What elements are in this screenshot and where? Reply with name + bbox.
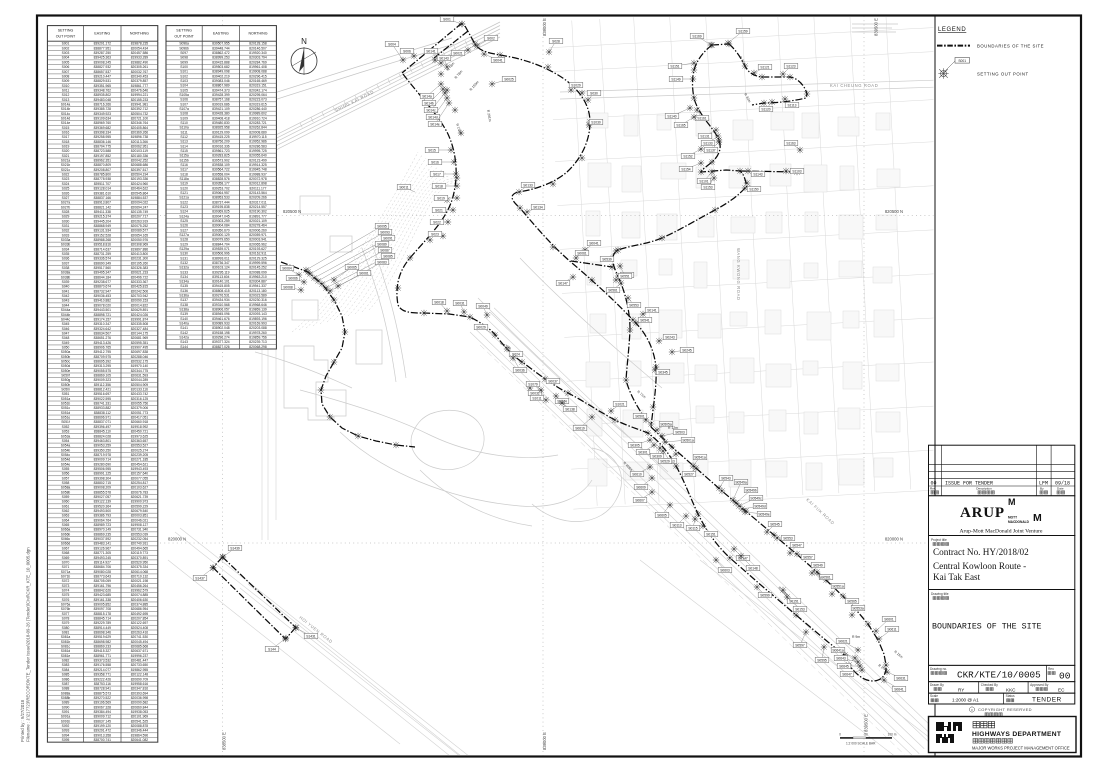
svg-text:839000 E: 839000 E [542,18,547,36]
svg-text:S0503: S0503 [675,430,685,434]
svg-text:Printed by : 9/27/2018: Printed by : 9/27/2018 [20,699,25,742]
svg-text:S0087: S0087 [380,248,390,252]
svg-text:S0065: S0065 [347,265,357,269]
svg-text:S014a: S014a [422,94,432,98]
svg-text:S1137: S1137 [706,148,715,152]
svg-text:S1011: S1011 [532,396,541,400]
svg-text:Contract No. HY/2018/02: Contract No. HY/2018/02 [933,547,1029,557]
svg-text:S0565: S0565 [847,599,857,603]
svg-text:S024: S024 [512,352,520,356]
svg-text:S0309: S0309 [652,454,662,458]
svg-text:S1123: S1123 [786,64,795,68]
svg-text:S0093: S0093 [380,230,390,234]
svg-text:820000 N: 820000 N [885,537,903,542]
svg-text:S0641: S0641 [894,687,904,691]
svg-text:S0153: S0153 [795,607,805,611]
svg-text:S0141: S0141 [647,308,657,312]
svg-text:S0547: S0547 [792,543,802,547]
svg-text:S1437: S1437 [195,576,205,580]
svg-text:S0601: S0601 [884,617,894,621]
svg-text:Rev.: Rev. [930,487,936,491]
svg-text:S0148: S0148 [748,566,758,570]
svg-text:S1431: S1431 [306,634,316,638]
svg-text:S0621: S0621 [838,639,848,643]
svg-text:EC: EC [1058,688,1065,693]
svg-text:S0619: S0619 [575,426,585,430]
svg-text:S019: S019 [437,196,445,200]
svg-text:S0083: S0083 [377,260,387,264]
svg-text:Drawn By: Drawn By [930,683,944,687]
svg-text:EASTING: EASTING [94,32,110,36]
svg-text:S0018: S0018 [434,300,444,304]
svg-text:09/18: 09/18 [1055,480,1070,486]
svg-text:S0609: S0609 [636,485,646,489]
svg-text:KAI CHEUNG ROAD: KAI CHEUNG ROAD [830,83,878,88]
svg-text:BOUNDARIES OF THE SITE: BOUNDARIES OF THE SITE [932,623,1042,632]
svg-text:S014e: S014e [430,122,440,126]
svg-text:S0551: S0551 [620,274,630,278]
svg-text:S1030: S1030 [591,120,601,124]
svg-text:N: N [301,37,307,46]
svg-text:WANG KWONG ROAD: WANG KWONG ROAD [736,248,741,301]
svg-text:839000 E: 839000 E [542,732,547,750]
svg-text:S0133: S0133 [523,183,533,187]
svg-text:S0345: S0345 [658,370,668,374]
svg-text:S0645: S0645 [839,664,849,668]
svg-text:S0643: S0643 [836,656,846,660]
svg-text:S0611: S0611 [887,627,896,631]
svg-text:50: 50 [864,733,868,737]
svg-text:S1131: S1131 [700,134,709,138]
svg-text:820000 N: 820000 N [168,537,186,542]
svg-text:S030: S030 [590,91,598,95]
svg-text:S1165: S1165 [676,123,685,127]
svg-text:Drawing title: Drawing title [931,592,949,596]
svg-text:RY: RY [958,688,964,693]
svg-text:R 9m: R 9m [852,635,860,639]
svg-text:S1161: S1161 [697,116,706,120]
svg-text:S0641a: S0641a [832,648,844,652]
svg-text:S0061: S0061 [577,251,587,255]
svg-text:S028: S028 [552,39,560,43]
svg-text:S0501: S0501 [635,414,645,418]
svg-text:S0561: S0561 [608,288,618,292]
svg-text:S1149: S1149 [671,77,680,81]
svg-text:S0134: S0134 [533,205,543,209]
svg-text:S017: S017 [433,172,441,176]
svg-text:S0543: S0543 [721,476,731,480]
svg-text:S0036: S0036 [515,368,525,372]
svg-text:S1140: S1140 [667,114,676,118]
svg-text:00: 00 [931,480,937,486]
svg-text:S014b: S014b [424,101,434,105]
svg-text:S021: S021 [435,208,443,212]
svg-text:MAJOR WORKS PROJECT MANAGEMENT: MAJOR WORKS PROJECT MANAGEMENT OFFICE [972,746,1070,751]
svg-text:S0301: S0301 [638,450,648,454]
svg-text:1:2000 @ A1: 1:2000 @ A1 [952,698,979,703]
svg-text:S1079: S1079 [528,382,538,386]
svg-text:S0529: S0529 [660,459,670,463]
svg-text:S0091: S0091 [383,236,393,240]
svg-text:1:2 000 SCALE BAR: 1:2 000 SCALE BAR [846,742,876,746]
svg-text:S016: S016 [431,160,439,164]
svg-text:S0031: S0031 [455,301,465,305]
svg-text:TENDER: TENDER [1032,697,1062,704]
svg-text:SETTING: SETTING [176,29,192,33]
svg-text:S1151: S1151 [670,64,679,68]
svg-text:S0545: S0545 [770,522,780,526]
svg-text:S0501a: S0501a [682,438,694,442]
svg-text:S1029: S1029 [571,83,581,87]
svg-text:S0549c: S0549c [750,496,762,500]
svg-text:S1021: S1021 [615,402,625,406]
svg-text:CKR/KTE/10/0005: CKR/KTE/10/0005 [957,670,1041,681]
svg-text:S1113: S1113 [787,103,796,107]
svg-text:S0541a: S0541a [694,455,706,459]
svg-text:0: 0 [839,733,841,737]
svg-text:S0243: S0243 [665,335,675,339]
svg-text:S1133: S1133 [703,141,712,145]
svg-text:BOUNDARIES OF THE SITE: BOUNDARIES OF THE SITE [977,44,1044,49]
svg-text:Arup-Mott MacDonald Joint Vent: Arup-Mott MacDonald Joint Venture [959,529,1043,535]
svg-text:S1163: S1163 [786,141,795,145]
svg-text:S0011: S0011 [399,185,408,189]
svg-text:Project title: Project title [931,538,947,542]
svg-text:839500 E: 839500 E [864,714,869,732]
svg-text:LEGEND: LEGEND [938,27,966,33]
svg-text:Central Kowloon Route -: Central Kowloon Route - [933,561,1026,571]
svg-text:Description: Description [976,487,992,491]
svg-text:S0032: S0032 [530,391,540,395]
svg-text:S1152: S1152 [683,154,692,158]
svg-text:S0245: S0245 [682,348,692,352]
svg-text:S0305: S0305 [630,443,640,447]
svg-text:S0061: S0061 [359,271,369,275]
svg-text:S0549b: S0549b [745,488,757,492]
svg-text:S0029: S0029 [476,325,486,329]
svg-text:OUT POINT: OUT POINT [56,35,76,39]
svg-text:838500 E: 838500 E [222,732,227,750]
svg-text:OUT POINT: OUT POINT [174,35,194,39]
svg-text:S001: S001 [958,59,966,63]
svg-text:S0603: S0603 [720,568,730,572]
svg-text:S1103: S1103 [792,169,801,173]
svg-text:S0041: S0041 [589,241,599,245]
svg-text:S0557: S0557 [803,555,813,559]
svg-text:S0037: S0037 [548,379,558,383]
svg-text:00: 00 [1059,671,1071,682]
svg-text:S0068: S0068 [283,285,293,289]
svg-text:S0549d: S0549d [754,504,766,508]
svg-text:HIGHWAYS DEPARTMENT: HIGHWAYS DEPARTMENT [972,731,1062,738]
svg-text:Checked By: Checked By [981,683,999,687]
svg-text:S0115: S0115 [688,526,697,530]
svg-text:S0527: S0527 [684,472,694,476]
svg-text:S0138: S0138 [565,407,575,411]
svg-text:S1159: S1159 [738,29,747,33]
svg-text:S0141: S0141 [426,49,436,53]
svg-text:M: M [1033,512,1042,524]
svg-text:100 m: 100 m [888,733,897,737]
svg-text:c: c [971,708,973,712]
svg-text:NORTHING: NORTHING [130,32,149,36]
svg-text:S0147: S0147 [558,281,568,285]
svg-text:S0064: S0064 [282,266,292,270]
svg-text:S0025: S0025 [504,77,514,81]
svg-text:S0595: S0595 [817,658,827,662]
svg-text:820500 N: 820500 N [283,209,301,214]
svg-text:S0597: S0597 [795,643,805,647]
svg-text:S023: S023 [431,232,439,236]
svg-text:S0049: S0049 [478,304,488,308]
svg-text:Status: Status [1006,694,1015,698]
svg-text:S1150: S1150 [749,187,758,191]
svg-text:S0539: S0539 [602,257,612,261]
svg-text:S0610: S0610 [632,472,642,476]
svg-text:ISSUE FOR TENDER: ISSUE FOR TENDER [945,480,993,486]
svg-text:Date: Date [1057,487,1064,491]
svg-text:S1121: S1121 [760,65,769,69]
svg-text:S0605: S0605 [657,513,667,517]
svg-text:S0143: S0143 [439,56,449,60]
svg-text:LFM: LFM [1039,480,1048,486]
svg-text:S0631: S0631 [896,676,906,680]
svg-text:S1143: S1143 [753,172,762,176]
svg-text:Rev.: Rev. [1048,667,1054,671]
svg-text:S022: S022 [433,220,441,224]
svg-text:S1153: S1153 [703,185,712,189]
svg-text:Scale: Scale [930,694,938,698]
svg-text:S0553: S0553 [783,536,793,540]
svg-text:S0041: S0041 [493,58,503,62]
svg-text:S014d: S014d [428,115,438,119]
svg-text:By: By [1040,487,1044,491]
svg-text:820500 N: 820500 N [885,209,903,214]
svg-text:MACDONALD: MACDONALD [1008,520,1030,524]
svg-text:S1101: S1101 [699,179,708,183]
svg-text:COPYRIGHT RESERVED: COPYRIGHT RESERVED [978,707,1032,712]
svg-text:S0599: S0599 [760,593,770,597]
svg-text:S0541: S0541 [640,318,650,322]
svg-text:S0113: S0113 [672,523,681,527]
svg-text:M: M [1008,497,1016,507]
svg-text:S0085: S0085 [383,254,393,258]
svg-text:S0549e: S0549e [758,512,770,516]
svg-text:S014c: S014c [426,108,436,112]
svg-text:EASTING: EASTING [213,32,229,36]
svg-text:S0647: S0647 [842,672,852,676]
svg-text:Filename : J:\217723\RECORD\: Filename : J:\217723\RECORD\KTE_Tender I… [26,547,31,742]
svg-text:S1154: S1154 [681,167,690,171]
svg-text:S0021: S0021 [453,51,463,55]
svg-text:S0553: S0553 [629,303,639,307]
svg-text:S0549: S0549 [813,563,823,567]
svg-text:S144: S144 [268,647,276,651]
svg-text:S002: S002 [487,36,495,40]
svg-text:KKC: KKC [1006,688,1016,693]
svg-text:S0095: S0095 [377,224,387,228]
svg-text:S1120: S1120 [761,107,770,111]
svg-text:S1169: S1169 [692,34,701,38]
svg-text:NORTHING: NORTHING [248,32,267,36]
svg-text:S0607: S0607 [635,498,645,502]
svg-text:S006: S006 [403,49,411,53]
svg-text:S0553a: S0553a [852,606,864,610]
svg-text:S001: S001 [443,17,451,21]
svg-text:S0151: S0151 [789,599,799,603]
svg-text:SETTING: SETTING [58,29,74,33]
svg-text:SETTING OUT POINT: SETTING OUT POINT [977,72,1029,77]
svg-text:839500 E: 839500 E [874,18,879,36]
svg-text:S015: S015 [428,148,436,152]
svg-text:S004: S004 [388,42,396,46]
svg-text:Drawing no.: Drawing no. [930,667,947,671]
svg-text:S018: S018 [435,184,443,188]
svg-text:Kai Tak East: Kai Tak East [933,572,981,582]
svg-text:S0089: S0089 [377,242,387,246]
svg-text:ARUP: ARUP [960,505,1005,521]
svg-text:S1439: S1439 [230,546,240,550]
svg-text:Approved By: Approved By [1030,683,1049,687]
svg-text:S0066: S0066 [288,276,298,280]
svg-text:S0551a: S0551a [832,584,844,588]
svg-text:R 12m: R 12m [668,426,678,430]
svg-text:S0151: S0151 [706,532,716,536]
svg-text:S0549a: S0549a [735,480,747,484]
